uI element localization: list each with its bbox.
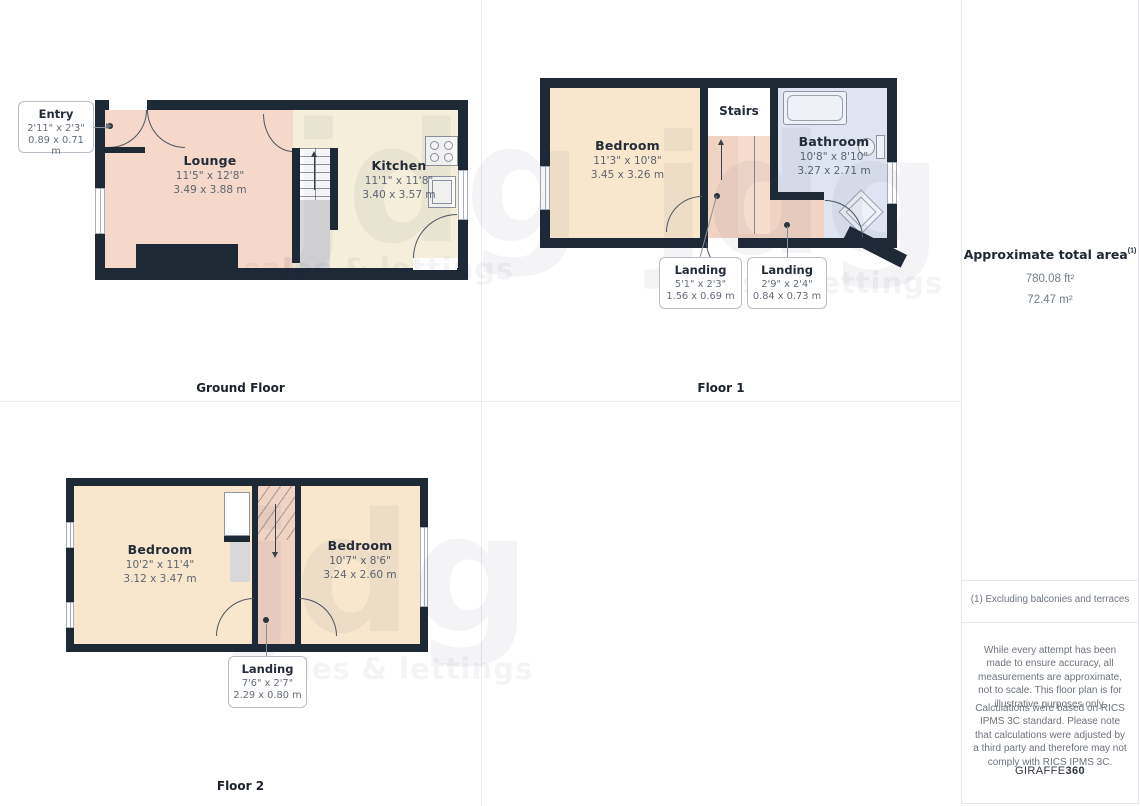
floor2-caption: Floor 2	[0, 779, 481, 793]
window	[66, 602, 74, 628]
callout-dim-metric: 0.84 x 0.73 m	[751, 291, 823, 302]
grid-vertical-divider	[481, 0, 482, 806]
understairs-area	[300, 200, 330, 268]
landing-callout: Landing 2'9" x 2'4" 0.84 x 0.73 m	[747, 257, 827, 309]
callout-leader-arrow	[106, 123, 112, 129]
ground-floor-caption: Ground Floor	[0, 381, 481, 395]
footnote-text: (1) Excluding balconies and terraces	[962, 594, 1138, 605]
bathtub-icon	[783, 91, 847, 125]
callout-title: Entry	[22, 107, 90, 121]
total-area-block: Approximate total area(1) 780.08 ft² 72.…	[962, 246, 1138, 306]
floorplan-page: jdg sales & lettings jdg sales & letting…	[0, 0, 1140, 806]
callout-dim-imperial: 5'1" x 2'3"	[663, 279, 738, 290]
entry-callout: Entry 2'11" x 2'3" 0.89 x 0.71 m	[18, 101, 94, 153]
bathroom-label: Bathroom 10'8" x 8'10" 3.27 x 2.71 m	[784, 134, 884, 177]
landing-wall-stub	[770, 192, 824, 200]
room-dim-imperial: 11'1" x 11'8"	[323, 175, 475, 187]
stairs-label: Stairs	[708, 104, 770, 118]
bedroom-left-label: Bedroom 10'2" x 11'4" 3.12 x 3.47 m	[84, 542, 236, 585]
stairs-bathroom-wall	[770, 88, 778, 200]
brand-name: GIRAFFE	[1015, 765, 1065, 777]
room-dim-metric: 3.40 x 3.57 m	[323, 189, 475, 201]
room-name: Bedroom	[84, 542, 236, 557]
callout-leader-line	[787, 226, 788, 257]
lounge-label: Lounge 11'5" x 12'8" 3.49 x 3.88 m	[125, 153, 295, 196]
landing-callout: Landing 5'1" x 2'3" 1.56 x 0.69 m	[659, 257, 742, 309]
stair-arrow-head	[311, 151, 317, 157]
room-dim-metric: 3.24 x 2.60 m	[304, 569, 416, 581]
landing-callout: Landing 7'6" x 2'7" 2.29 x 0.80 m	[228, 656, 307, 708]
callout-dim-imperial: 2'11" x 2'3"	[22, 123, 90, 134]
callout-dim-metric: 1.56 x 0.69 m	[663, 291, 738, 302]
room-dim-metric: 3.45 x 3.26 m	[555, 169, 700, 181]
sidebar-divider	[962, 580, 1138, 581]
stair-direction-arrow	[721, 144, 722, 180]
chimney-breast	[136, 244, 238, 268]
room-dim-metric: 3.27 x 2.71 m	[784, 165, 884, 177]
callout-dim-metric: 2.29 x 0.80 m	[232, 690, 303, 701]
bedroom-right-label: Bedroom 10'7" x 8'6" 3.24 x 2.60 m	[304, 538, 416, 581]
room-dim-imperial: 11'3" x 10'8"	[555, 155, 700, 167]
stair-arrow-head	[718, 139, 724, 145]
room-dim-imperial: 10'7" x 8'6"	[304, 555, 416, 567]
floor2-plan: Bedroom 10'2" x 11'4" 3.12 x 3.47 m Bedr…	[66, 478, 428, 652]
callout-title: Landing	[232, 662, 303, 676]
floor1-caption: Floor 1	[481, 381, 961, 395]
callout-dim-imperial: 2'9" x 2'4"	[751, 279, 823, 290]
room-dim-imperial: 11'5" x 12'8"	[125, 170, 295, 182]
window	[540, 166, 550, 210]
total-area-title: Approximate total area	[964, 247, 1128, 262]
room-dim-metric: 3.12 x 3.47 m	[84, 573, 236, 585]
total-area-footnote-marker: (1)	[1128, 248, 1137, 255]
callout-leader-line	[266, 624, 267, 656]
kitchen-door-opening	[413, 258, 457, 270]
staircase	[258, 486, 295, 540]
window	[887, 162, 897, 204]
callout-title: Landing	[751, 263, 823, 277]
landing-hinge-dot	[263, 617, 269, 623]
callout-title: Landing	[663, 263, 738, 277]
sidebar-divider	[962, 622, 1138, 623]
grid-horizontal-divider	[0, 401, 961, 402]
disclaimer-accuracy: While every attempt has been made to ens…	[972, 644, 1128, 711]
room-name: Bedroom	[555, 138, 700, 153]
window	[420, 527, 428, 607]
ground-floor-plan: Lounge 11'5" x 12'8" 3.49 x 3.88 m Kitch…	[95, 100, 468, 280]
total-area-ft: 780.08 ft²	[962, 273, 1138, 285]
room-dim-metric: 3.49 x 3.88 m	[125, 184, 295, 196]
window	[95, 188, 105, 234]
brand-suffix: 360	[1065, 765, 1085, 777]
room-dim-imperial: 10'2" x 11'4"	[84, 559, 236, 571]
room-name: Lounge	[125, 153, 295, 168]
callout-dim-metric: 0.89 x 0.71 m	[22, 135, 90, 157]
bedroom-stairs-wall	[700, 88, 708, 194]
stair-arrow-head	[272, 552, 278, 558]
landing-wall	[295, 486, 301, 598]
floor1-plan: Stairs Bedroom 11'3" x 10'8" 3.45	[540, 78, 897, 248]
stair-direction-arrow	[275, 504, 276, 552]
callout-dim-imperial: 7'6" x 2'7"	[232, 678, 303, 689]
landing-small-area	[778, 200, 824, 238]
entry-door-opening	[109, 100, 147, 110]
closet-icon	[224, 492, 250, 536]
room-dim-imperial: 10'8" x 8'10"	[784, 151, 884, 163]
stair-direction-arrow	[314, 156, 315, 190]
area-summary-sidebar: Approximate total area(1) 780.08 ft² 72.…	[961, 0, 1139, 804]
kitchen-label: Kitchen 11'1" x 11'8" 3.40 x 3.57 m	[323, 158, 475, 201]
giraffe360-logo: GIRAFFE360	[962, 765, 1138, 777]
room-name: Bathroom	[784, 134, 884, 149]
room-name: Kitchen	[323, 158, 475, 173]
total-area-m: 72.47 m²	[962, 294, 1138, 306]
staircase	[738, 136, 770, 234]
disclaimer-rics: Calculations were based on RICS IPMS 3C …	[972, 702, 1128, 769]
bedroom-label: Bedroom 11'3" x 10'8" 3.45 x 3.26 m	[555, 138, 700, 181]
room-name: Bedroom	[304, 538, 416, 553]
window	[66, 522, 74, 548]
callout-leader-line	[94, 127, 106, 128]
